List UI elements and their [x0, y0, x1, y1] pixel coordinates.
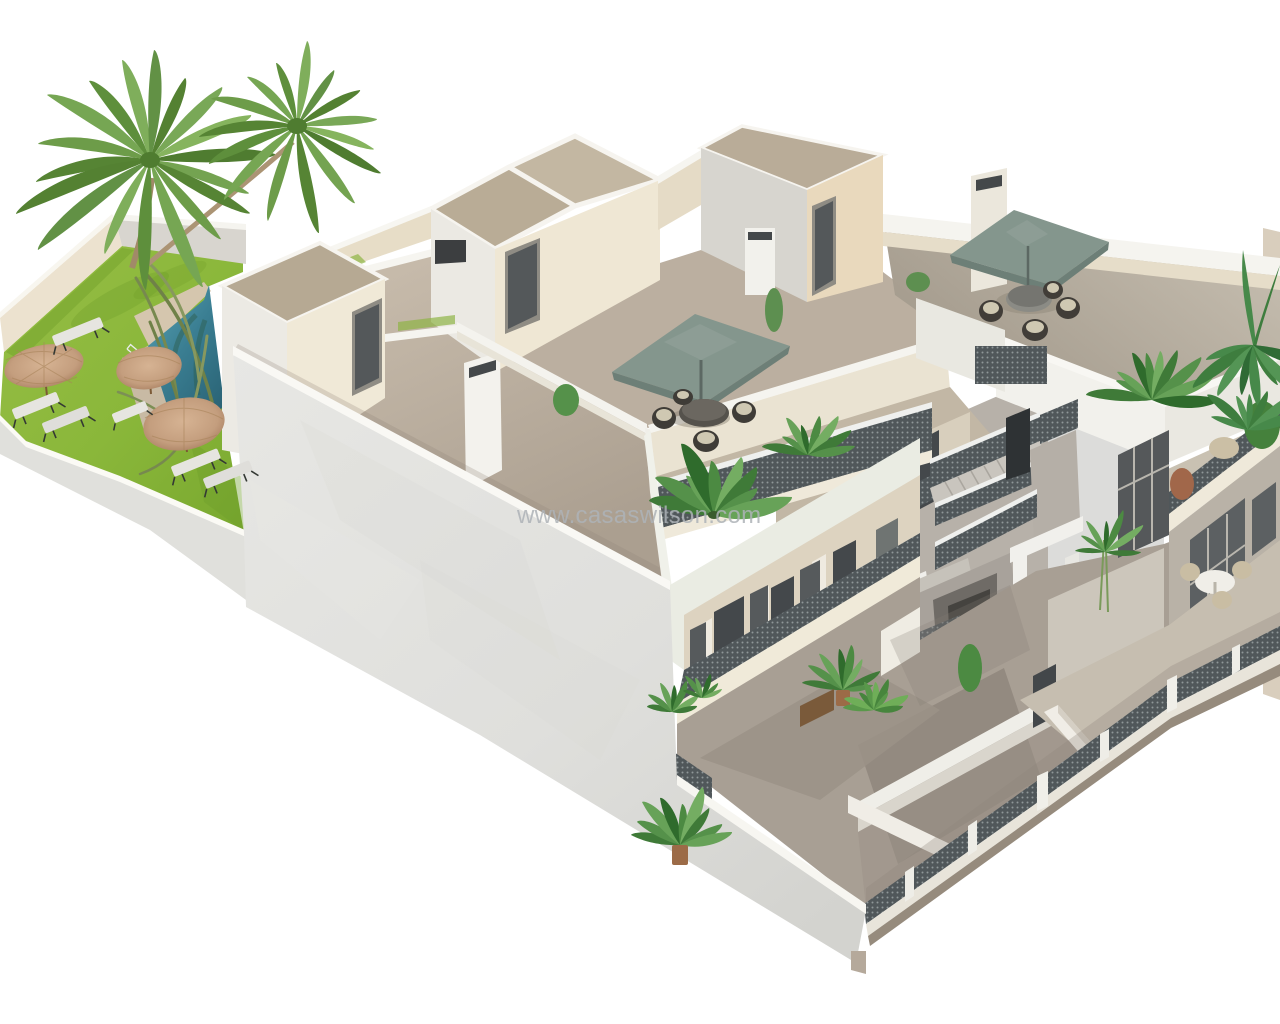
svg-text:www.casaswilson.com: www.casaswilson.com [516, 502, 761, 529]
